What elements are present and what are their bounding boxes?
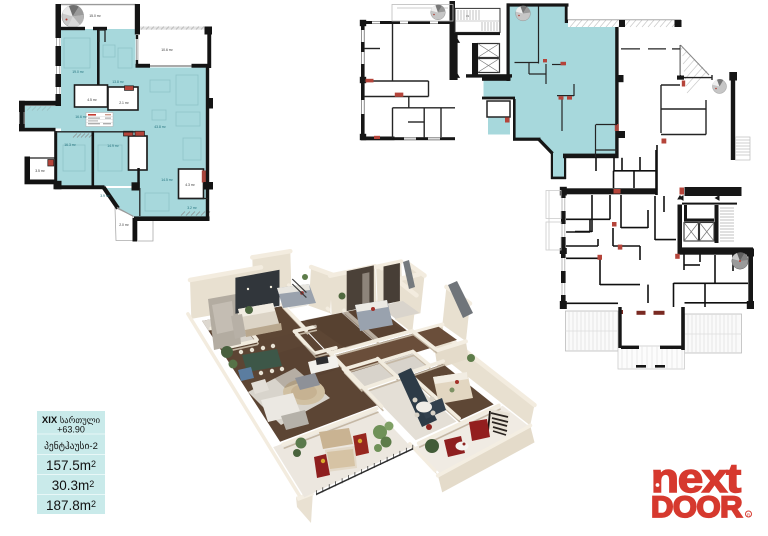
svg-text:187.8m2: 187.8m2 xyxy=(46,498,96,513)
svg-text:2.1 m²: 2.1 m² xyxy=(119,101,129,105)
svg-text:13.8 m²: 13.8 m² xyxy=(112,80,124,84)
svg-text:16.3 m²: 16.3 m² xyxy=(64,143,76,147)
svg-text:DOOR: DOOR xyxy=(651,491,743,524)
svg-text:19.0 m²: 19.0 m² xyxy=(72,70,84,74)
svg-text:პენტჰაუსი-2: პენტჰაუსი-2 xyxy=(44,440,98,452)
svg-text:4.5 m²: 4.5 m² xyxy=(87,98,97,102)
svg-text:+63.90: +63.90 xyxy=(57,425,85,435)
svg-text:3.9 m²: 3.9 m² xyxy=(100,194,110,198)
svg-text:15.0 m²: 15.0 m² xyxy=(89,14,101,18)
svg-text:19: 19 xyxy=(466,14,470,18)
svg-text:4.3 m²: 4.3 m² xyxy=(185,183,195,187)
svg-text:14.5 m²: 14.5 m² xyxy=(161,178,173,182)
svg-text:16.6 m²: 16.6 m² xyxy=(75,115,87,119)
svg-text:157.5m2: 157.5m2 xyxy=(46,458,96,473)
svg-text:2.0 m²: 2.0 m² xyxy=(119,223,129,227)
svg-text:10.6 m²: 10.6 m² xyxy=(161,48,173,52)
svg-text:30.3m2: 30.3m2 xyxy=(52,478,95,493)
svg-text:14.9 m²: 14.9 m² xyxy=(107,144,119,148)
svg-text:43.8 m²: 43.8 m² xyxy=(154,125,166,129)
svg-text:3.5 m²: 3.5 m² xyxy=(35,169,45,173)
svg-text:3.2 m²: 3.2 m² xyxy=(187,206,197,210)
